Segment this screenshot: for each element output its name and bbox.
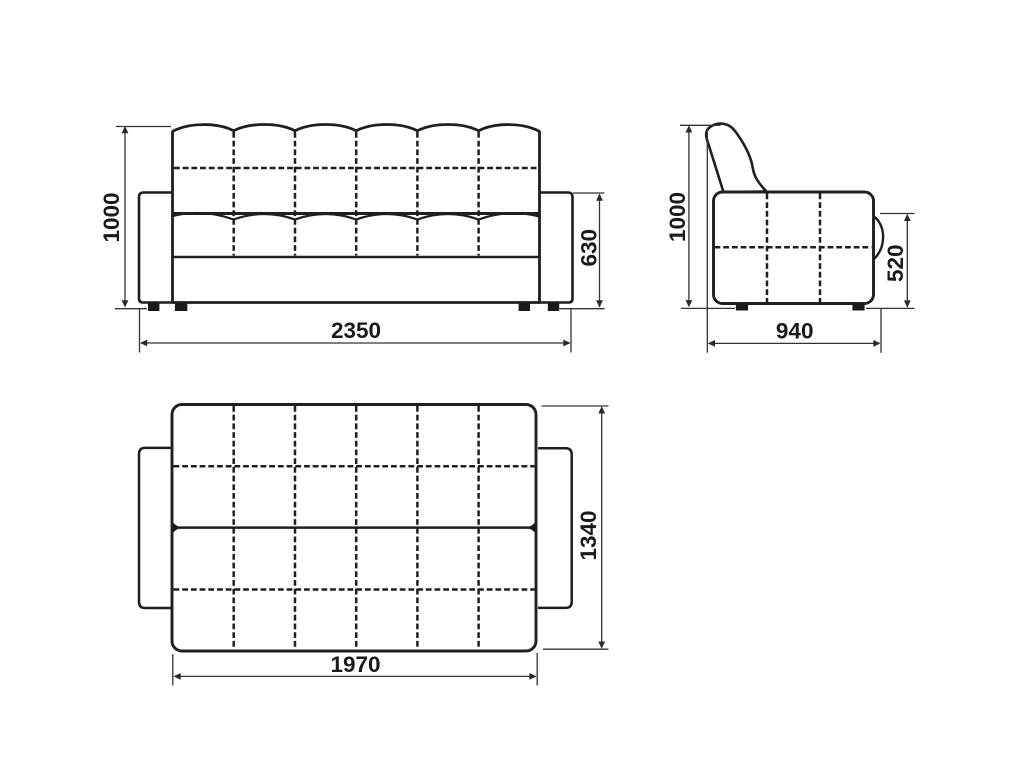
svg-text:630: 630 <box>577 229 602 267</box>
svg-text:1340: 1340 <box>576 510 601 560</box>
svg-text:2350: 2350 <box>331 318 381 343</box>
svg-text:1000: 1000 <box>665 192 690 242</box>
svg-text:940: 940 <box>776 319 814 344</box>
svg-text:1970: 1970 <box>330 652 380 677</box>
svg-text:520: 520 <box>883 244 908 282</box>
svg-text:1000: 1000 <box>99 192 124 242</box>
